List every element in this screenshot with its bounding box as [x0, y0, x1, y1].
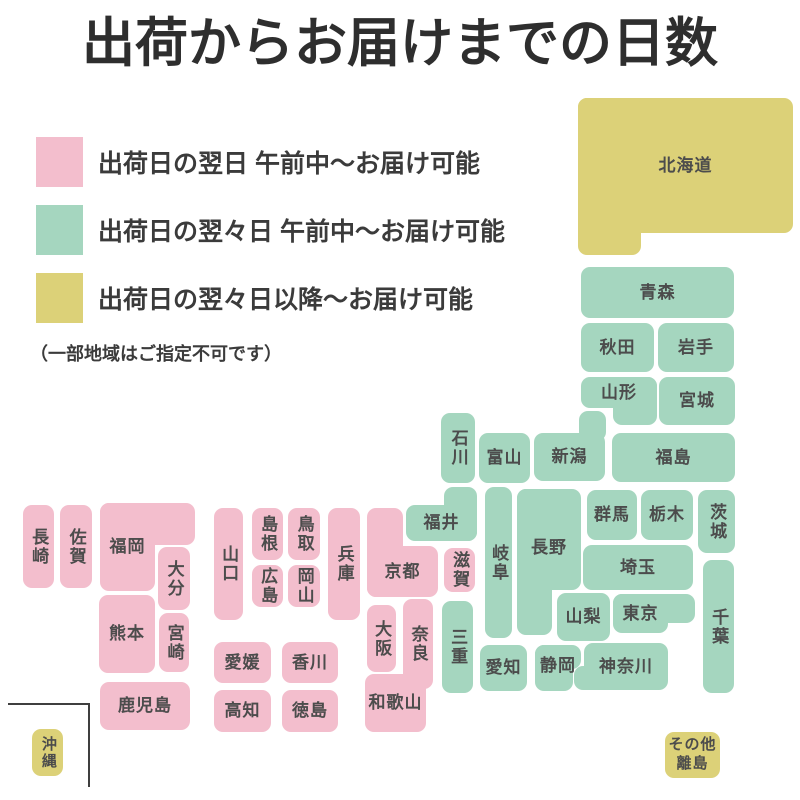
label-kagoshima: 鹿児島	[100, 682, 190, 730]
label-tottori: 鳥取	[288, 508, 320, 560]
label-ishikawa: 石川	[441, 413, 475, 483]
label-tokyo: 東京	[613, 594, 668, 633]
label-tokushima: 徳島	[282, 690, 338, 732]
label-nagasaki: 長崎	[23, 505, 54, 588]
label-fukushima: 福島	[612, 433, 735, 482]
label-kanagawa: 神奈川	[584, 643, 668, 690]
label-miyagi: 宮城	[659, 377, 735, 425]
label-mie: 三重	[442, 601, 473, 693]
label-kyoto: 京都	[367, 546, 438, 597]
label-kochi: 高知	[214, 690, 271, 732]
label-okayama: 岡山	[288, 565, 320, 607]
japan-map: 北海道青森秋田岩手山形宮城新潟福島石川富山群馬栃木茨城埼玉千葉東京山梨長野岐阜福…	[0, 0, 800, 800]
label-osaka: 大阪	[367, 605, 396, 672]
label-iwate: 岩手	[658, 323, 734, 372]
label-gunma: 群馬	[587, 490, 637, 540]
label-ibaraki: 茨城	[698, 490, 735, 553]
label-kagawa: 香川	[282, 642, 338, 683]
label-ehime: 愛媛	[214, 642, 271, 683]
label-yamagata: 山形	[581, 377, 657, 408]
label-chiba: 千葉	[703, 560, 734, 693]
label-akita: 秋田	[581, 323, 654, 372]
label-saga: 佐賀	[60, 505, 92, 588]
label-shimane: 島根	[252, 508, 283, 560]
label-hiroshima: 広島	[252, 565, 283, 607]
label-toyama: 富山	[479, 433, 530, 483]
label-nagano: 長野	[517, 489, 581, 607]
label-oita: 大分	[158, 547, 190, 610]
label-fukui: 福井	[406, 505, 477, 541]
label-shiga: 滋賀	[444, 548, 475, 592]
label-hyogo: 兵庫	[328, 508, 360, 620]
label-yamaguchi: 山口	[214, 508, 243, 620]
label-wakayama: 和歌山	[365, 674, 426, 732]
label-aomori: 青森	[581, 267, 734, 318]
label-gifu: 岐阜	[485, 487, 512, 638]
label-kumamoto: 熊本	[99, 595, 155, 673]
label-other-islands: その他 離島	[665, 732, 720, 778]
label-aichi: 愛知	[480, 645, 527, 691]
label-tochigi: 栃木	[641, 490, 693, 540]
label-okinawa: 沖縄	[32, 729, 63, 776]
label-miyazaki: 宮崎	[159, 613, 189, 672]
label-hokkaido: 北海道	[578, 98, 793, 233]
label-fukuoka: 福岡	[100, 503, 155, 591]
label-niigata: 新潟	[534, 433, 605, 481]
label-saitama: 埼玉	[583, 545, 693, 590]
